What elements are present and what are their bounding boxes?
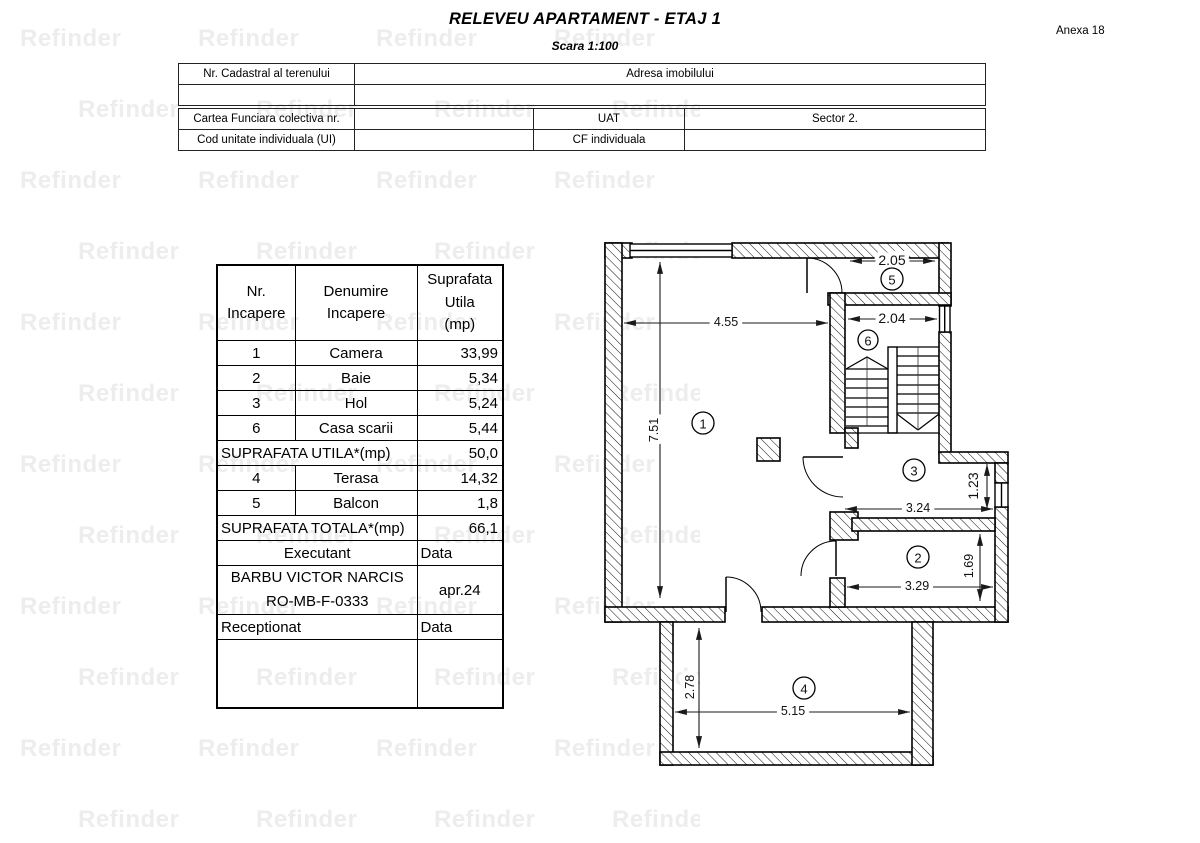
dim-hall-height: 1.23: [965, 464, 987, 509]
wall-right-lower-a: [995, 463, 1008, 483]
wall-terrace-left: [660, 622, 673, 765]
dim-label: 2.04: [878, 310, 905, 326]
room-number: 3: [910, 464, 917, 479]
dim-bath-width: 3.29: [847, 579, 993, 593]
dim-stairs-width: 2.04: [848, 310, 937, 326]
dimensions: 4.55 7.51 2.05 2.04 3.24 1.23: [624, 252, 993, 748]
wall-hall-bath: [852, 518, 995, 531]
door-hall: [803, 457, 843, 497]
dim-label: 3.24: [906, 501, 930, 515]
dim-terrace-width: 5.15: [675, 704, 910, 718]
room-marker-1: 1: [692, 412, 714, 434]
dim-label: 2.05: [878, 252, 905, 268]
door-terrace: [726, 577, 761, 612]
room-number: 2: [914, 551, 921, 566]
dim-terrace-height: 2.78: [683, 628, 699, 748]
dim-label: 7.51: [647, 418, 661, 442]
room-number: 6: [864, 334, 871, 349]
document-page: RefinderRefinderRefinderRefinderRefinder…: [0, 0, 1200, 843]
dim-label: 5.15: [781, 704, 805, 718]
stairs-stringer: [888, 347, 897, 433]
room-marker-2: 2: [907, 546, 929, 568]
wall-bottom-left: [605, 607, 725, 622]
dim-room1-height: 7.51: [647, 262, 661, 598]
staircase: [846, 347, 939, 433]
wall-top: [732, 243, 948, 258]
wall-right-upper-b: [939, 332, 951, 454]
room-markers: 1 2 3 4 5 6: [692, 268, 929, 699]
room-marker-6: 6: [858, 330, 878, 350]
dim-room1-width: 4.55: [624, 315, 828, 329]
dim-label: 1.23: [965, 472, 981, 499]
wall-right-lower-b: [995, 507, 1008, 622]
dim-label: 1.69: [962, 554, 976, 578]
floor-plan: 4.55 7.51 2.05 2.04 3.24 1.23: [0, 0, 1200, 843]
room-number: 5: [888, 273, 895, 288]
column: [757, 438, 780, 461]
dim-label: 4.55: [714, 315, 738, 329]
dim-hall-width: 3.24: [845, 501, 993, 515]
wall-terrace-bottom: [660, 752, 933, 765]
room-number: 4: [800, 682, 807, 697]
wall-bottom-right: [762, 607, 1008, 622]
room-number: 1: [699, 417, 706, 432]
doors: [726, 258, 843, 612]
room-marker-3: 3: [903, 459, 925, 481]
dim-bath-height: 1.69: [962, 534, 980, 601]
door-balcony: [807, 258, 842, 293]
wall-balcony-bottom: [828, 293, 951, 305]
wall-terrace-right: [912, 622, 933, 765]
wall-left: [605, 243, 622, 622]
door-bath: [801, 541, 836, 576]
room-marker-5: 5: [881, 268, 903, 290]
room-marker-4: 4: [793, 677, 815, 699]
wall-stairs-left: [830, 293, 845, 433]
dim-label: 3.29: [905, 579, 929, 593]
door-jamb-bath: [830, 578, 845, 607]
dim-label: 2.78: [683, 675, 697, 699]
wall-notch: [845, 428, 858, 448]
wall-ext-top: [939, 452, 1008, 463]
